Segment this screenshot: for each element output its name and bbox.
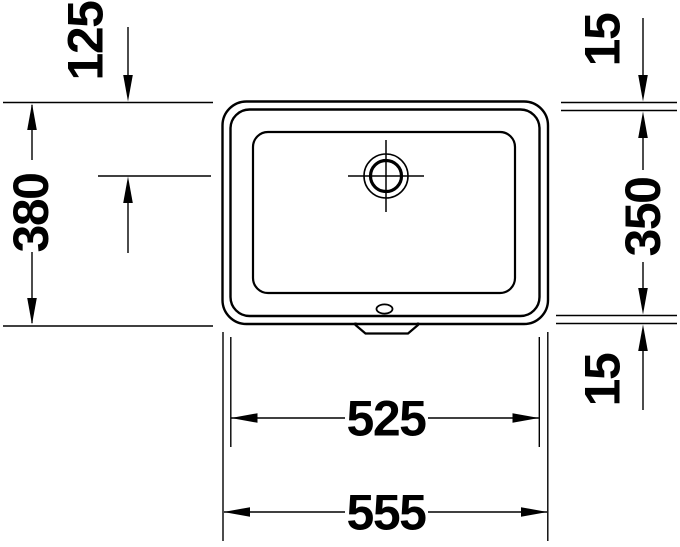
dim-label-inner-depth: 350 bbox=[615, 178, 671, 257]
basin-outer-rim-outline bbox=[223, 102, 549, 325]
dim-label-overall-depth: 380 bbox=[3, 174, 59, 253]
arrow-down-icon bbox=[638, 75, 648, 102]
drain-hole bbox=[348, 140, 424, 212]
drawing-page: 125 380 15 350 15 bbox=[0, 0, 680, 547]
arrow-right-icon bbox=[521, 507, 548, 517]
arrow-up-icon bbox=[123, 177, 133, 204]
basin-bowl-outline bbox=[253, 132, 515, 293]
technical-drawing-canvas: 125 380 15 350 15 bbox=[0, 0, 680, 547]
arrow-down-icon bbox=[123, 75, 133, 102]
arrow-up-icon bbox=[27, 104, 37, 131]
dimension-annotations: 125 380 15 350 15 bbox=[3, 1, 677, 541]
arrow-right-icon bbox=[513, 413, 540, 423]
dim-label-top-offset: 125 bbox=[58, 1, 114, 81]
basin-inner-rim-outline bbox=[231, 110, 540, 317]
dim-label-overall-width: 555 bbox=[347, 485, 427, 541]
arrow-down-icon bbox=[638, 288, 648, 315]
arrow-up-icon bbox=[638, 325, 648, 352]
dim-label-inner-width: 525 bbox=[347, 391, 427, 447]
overflow-hole bbox=[377, 304, 393, 313]
basin-top-view bbox=[223, 102, 549, 334]
dim-label-rim-top: 15 bbox=[575, 13, 631, 66]
dim-label-rim-bottom: 15 bbox=[575, 353, 631, 406]
arrow-down-icon bbox=[27, 298, 37, 325]
